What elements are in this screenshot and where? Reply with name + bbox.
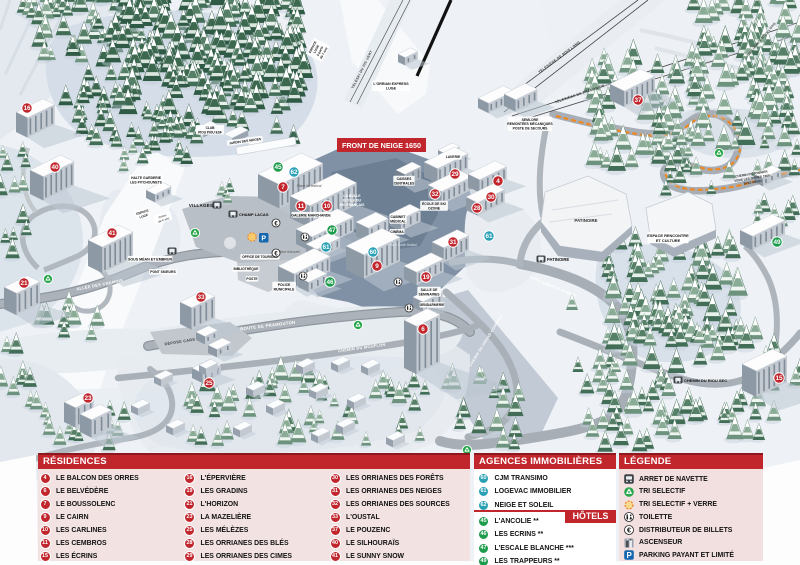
svg-text:23: 23	[84, 395, 92, 402]
svg-text:ET CULTURE: ET CULTURE	[656, 238, 681, 243]
svg-text:P: P	[261, 236, 266, 243]
svg-text:P: P	[627, 551, 633, 560]
svg-text:MUNICIPALE: MUNICIPALE	[274, 287, 296, 291]
svg-text:CHAMP LACAS: CHAMP LACAS	[239, 212, 269, 217]
svg-text:30: 30	[487, 194, 495, 201]
svg-text:10: 10	[323, 203, 331, 210]
svg-text:Place du festival: Place du festival	[297, 184, 322, 188]
svg-text:SEMLORE: SEMLORE	[522, 118, 540, 122]
svg-text:60: 60	[369, 249, 377, 256]
svg-text:61: 61	[322, 244, 330, 251]
svg-text:FRONT DE NEIGE 1650: FRONT DE NEIGE 1650	[342, 141, 421, 150]
svg-text:15: 15	[775, 375, 783, 382]
svg-text:41: 41	[108, 230, 116, 237]
svg-text:28: 28	[473, 205, 481, 212]
svg-text:VILLAGES: VILLAGES	[189, 203, 213, 208]
svg-text:MÉDICAL: MÉDICAL	[390, 218, 405, 223]
svg-text:62: 62	[290, 169, 298, 176]
svg-text:LES PITCHOUNETS: LES PITCHOUNETS	[130, 180, 163, 184]
svg-text:OZONE: OZONE	[428, 206, 441, 210]
svg-text:45: 45	[274, 164, 282, 171]
svg-text:16: 16	[23, 105, 31, 112]
svg-text:CHEMIN DU RIOU SEC: CHEMIN DU RIOU SEC	[684, 378, 727, 383]
svg-text:REMONTÉES MÉCANIQUES: REMONTÉES MÉCANIQUES	[507, 121, 553, 126]
svg-text:40: 40	[51, 164, 59, 171]
svg-text:PIOU PIOU ESF: PIOU PIOU ESF	[198, 130, 222, 134]
svg-text:46: 46	[326, 279, 334, 286]
svg-text:CABINET: CABINET	[390, 215, 406, 219]
svg-text:PONT SKIEURS: PONT SKIEURS	[150, 270, 176, 274]
svg-text:47: 47	[328, 227, 336, 234]
svg-text:GENDARMERIE: GENDARMERIE	[420, 303, 446, 307]
svg-text:7: 7	[281, 184, 285, 191]
svg-text:PATINOIRE: PATINOIRE	[547, 257, 569, 262]
svg-text:SOUS MÉAN ET EMBRUN: SOUS MÉAN ET EMBRUN	[128, 256, 173, 261]
svg-text:ÉCOLE DU: ÉCOLE DU	[343, 197, 362, 202]
svg-text:49: 49	[773, 239, 781, 246]
svg-text:37: 37	[634, 97, 642, 104]
svg-text:CENTRALES: CENTRALES	[394, 181, 415, 185]
svg-text:29: 29	[451, 171, 459, 178]
svg-text:SKI FRANÇAIS: SKI FRANÇAIS	[340, 203, 366, 207]
svg-text:ÉCOLE DE SKI: ÉCOLE DE SKI	[422, 201, 446, 206]
svg-text:SALLE DE: SALLE DE	[421, 288, 439, 292]
svg-text:POSTE: POSTE	[246, 277, 258, 281]
svg-text:25: 25	[205, 380, 213, 387]
svg-text:31: 31	[449, 239, 457, 246]
svg-text:CAISSES: CAISSES	[397, 177, 413, 181]
svg-text:POSTE DE SECOURS: POSTE DE SECOURS	[513, 127, 549, 131]
svg-text:LAVERIE: LAVERIE	[446, 155, 461, 159]
svg-text:21: 21	[20, 280, 28, 287]
svg-text:SÉMINAIRES: SÉMINAIRES	[418, 291, 440, 296]
svg-text:PATINOIRE: PATINOIRE	[574, 218, 597, 223]
svg-text:Place École Hodoul: Place École Hodoul	[389, 242, 417, 247]
svg-text:HALTE GARDERIE: HALTE GARDERIE	[131, 176, 162, 180]
svg-text:11: 11	[298, 203, 305, 210]
svg-text:Place d'accueil: Place d'accueil	[278, 250, 299, 254]
svg-text:LUGE: LUGE	[386, 87, 397, 91]
svg-text:19: 19	[422, 274, 430, 281]
svg-text:CINÉMA: CINÉMA	[390, 229, 404, 234]
svg-text:L'ORRIAN EXPRESS: L'ORRIAN EXPRESS	[373, 82, 409, 86]
svg-text:33: 33	[197, 294, 205, 301]
svg-text:32: 32	[431, 191, 439, 198]
svg-text:61: 61	[485, 233, 493, 240]
svg-text:LA BULLE: LA BULLE	[343, 194, 361, 198]
svg-text:BIBLIOTHÈQUE: BIBLIOTHÈQUE	[234, 266, 260, 271]
svg-text:4: 4	[496, 178, 500, 185]
svg-text:6: 6	[421, 326, 425, 333]
svg-text:GALERIE MARCHANDE: GALERIE MARCHANDE	[291, 213, 331, 217]
svg-text:POLICE: POLICE	[278, 283, 291, 287]
svg-text:9: 9	[375, 263, 379, 270]
